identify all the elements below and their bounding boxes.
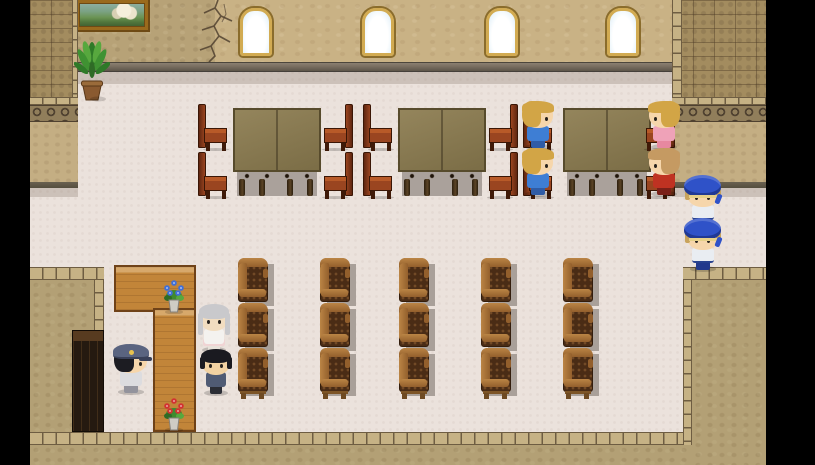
red-flower-vase (158, 390, 190, 432)
blue-flower-vase (158, 262, 190, 314)
arched-window-3 (486, 8, 518, 56)
armchair-c5-r1 (563, 258, 600, 305)
chair-t1-right-bottom (323, 152, 353, 199)
npc-head (115, 347, 147, 373)
wall-ledge (72, 62, 672, 72)
armchair-c5-r2 (563, 303, 600, 350)
potted-plant (74, 36, 110, 102)
npc-head (649, 149, 679, 175)
armchair-c4-r2 (481, 303, 518, 350)
bottom-right-block-left-edge (683, 280, 692, 445)
beret-icon (684, 175, 721, 197)
arched-window-1 (240, 8, 272, 56)
dining-table-2 (398, 108, 486, 196)
chair-t1-right-top (323, 104, 353, 151)
npc-head (687, 181, 719, 207)
armchair-c3-r2 (399, 303, 436, 350)
bottom-left-block-top-edge (30, 267, 104, 280)
npc-head (202, 350, 231, 375)
chair-t2-left-bottom (363, 152, 393, 199)
bottom-wall-fill (30, 445, 692, 465)
npc-guard-beret-bottom[interactable] (684, 224, 722, 272)
npc-head (200, 305, 229, 331)
chair-t2-left-top (363, 104, 393, 151)
bottom-right-block-fill (692, 280, 766, 465)
arched-window-4 (607, 8, 639, 56)
npc-head (523, 102, 553, 128)
chair-t1-left-bottom (198, 152, 228, 199)
wall-shadow-strip (72, 72, 672, 84)
dark-cabinet (72, 330, 104, 432)
npc-head (687, 224, 719, 250)
arched-window-2 (362, 8, 394, 56)
armchair-c1-r1 (238, 258, 275, 305)
left-wall-column (30, 0, 78, 188)
npc-head (649, 102, 679, 128)
castle-painting (76, 0, 148, 30)
npc-clerk-black-hair[interactable] (199, 350, 233, 396)
armchair-c1-r2 (238, 303, 275, 350)
npc-head (523, 149, 553, 175)
npc-seated-boy-blue-top[interactable] (520, 102, 556, 150)
npc-seated-girl-pink[interactable] (646, 102, 682, 150)
armchair-c4-r3 (481, 348, 518, 400)
wall-crack-decal (188, 0, 240, 62)
wall-window-section (215, 0, 672, 62)
npc-seated-boy-blue-bottom[interactable] (520, 149, 556, 197)
armchair-c3-r3 (399, 348, 436, 400)
armchair-c4-r1 (481, 258, 518, 305)
dining-table-3 (563, 108, 651, 196)
left-column-shadow (30, 188, 78, 197)
armchair-c3-r1 (399, 258, 436, 305)
armchair-c1-r3 (238, 348, 275, 400)
chair-t2-right-bottom (488, 152, 518, 199)
chair-t2-right-top (488, 104, 518, 151)
dining-table-1 (233, 108, 321, 196)
right-wall-column (672, 0, 766, 188)
armchair-c2-r1 (320, 258, 357, 305)
npc-seated-man-red[interactable] (646, 149, 682, 197)
npc-elder-woman[interactable] (197, 305, 231, 353)
armchair-c2-r2 (320, 303, 357, 350)
game-map[interactable] (0, 0, 815, 465)
beret-icon (684, 218, 721, 240)
chair-t1-left-top (198, 104, 228, 151)
armchair-c5-r3 (563, 348, 600, 400)
bottom-wall-edge (30, 432, 683, 445)
npc-officer-cap[interactable] (112, 347, 150, 395)
armchair-c2-r3 (320, 348, 357, 400)
